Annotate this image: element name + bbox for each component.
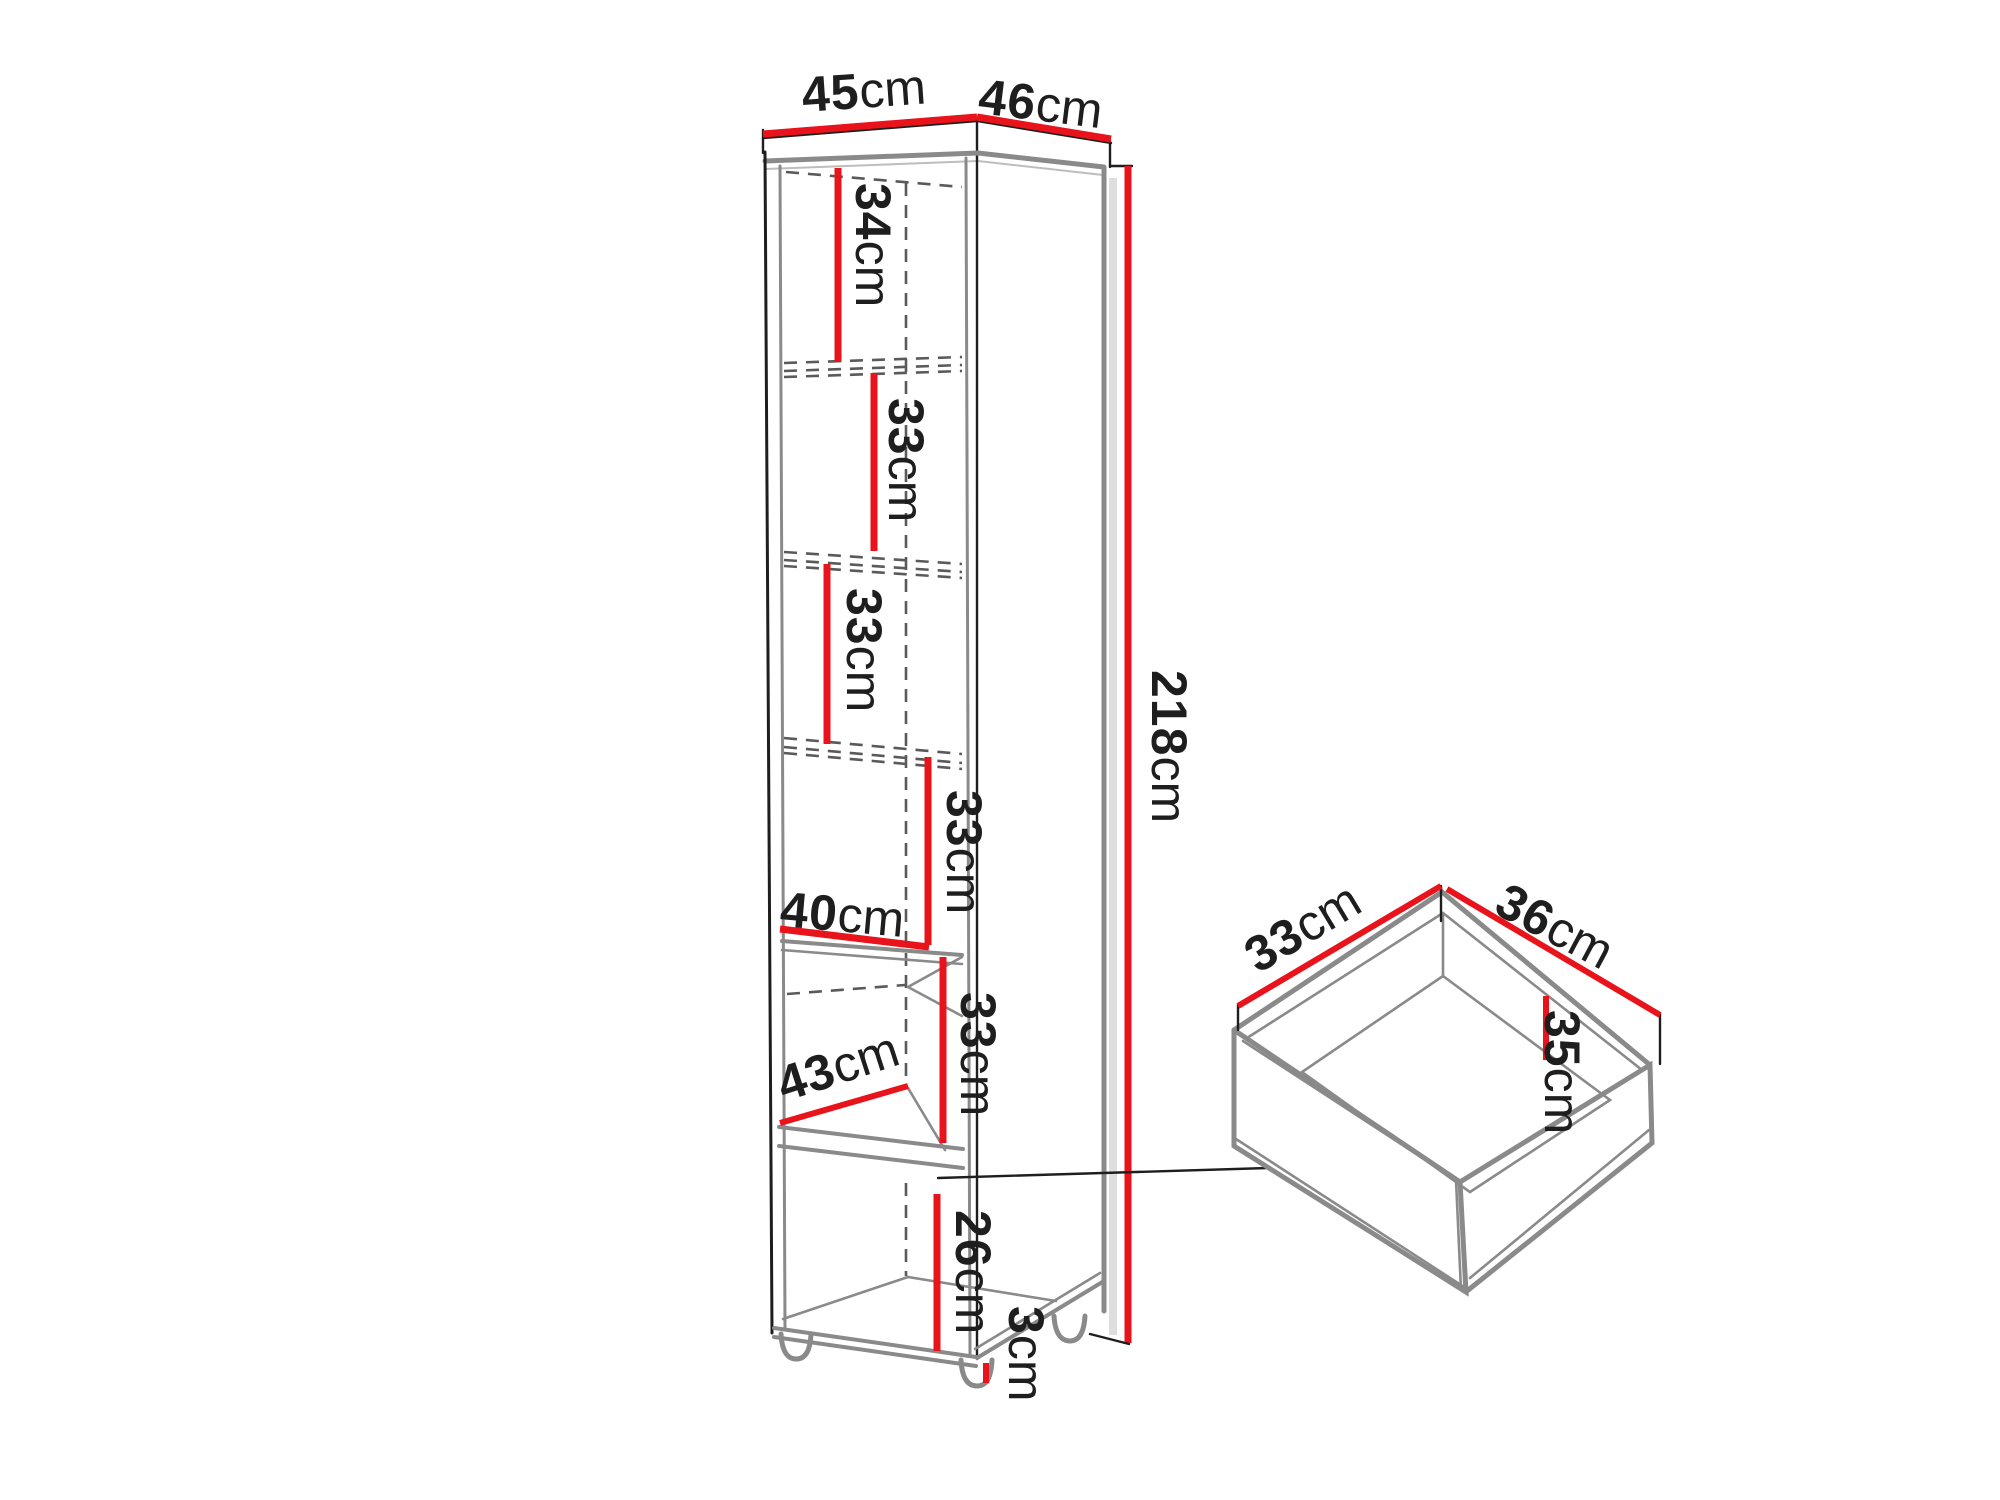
dim-label-top-width: 45cm xyxy=(800,58,928,123)
bottom-divider-front-edge xyxy=(779,1127,963,1149)
dim-label-section-2: 33cm xyxy=(878,398,934,522)
cabinet xyxy=(763,119,1132,1386)
dim-label-section-4: 33cm xyxy=(936,790,992,914)
cabinet-body-outline xyxy=(765,152,1104,1366)
dim-label-drawer-height: 35cm xyxy=(1534,1010,1590,1134)
dim-label-bottom-section: 26cm xyxy=(945,1210,1001,1334)
dim-label-top-depth: 46cm xyxy=(976,68,1106,139)
shelf-1-hidden-edge xyxy=(784,357,962,363)
dim-label-height: 218cm xyxy=(1141,670,1197,823)
shelf-3-hidden-edge xyxy=(784,738,962,754)
dim-label-section-1: 34cm xyxy=(845,183,901,307)
dim-label-section-3: 33cm xyxy=(836,588,892,712)
dim-label-foot-height: 3cm xyxy=(998,1306,1054,1401)
dim-line-top-width xyxy=(763,117,977,134)
dim-label-section-5: 33cm xyxy=(950,992,1006,1116)
cabinet-hidden-edges xyxy=(784,172,962,1276)
dim-label-shelf-depth: 43cm xyxy=(770,1021,906,1113)
furniture-dimension-diagram: 45cm 46cm 218cm 34cm 33cm 33cm 33cm 33cm… xyxy=(0,0,2000,1500)
cabinet-foot xyxy=(1054,1316,1085,1341)
dimension-labels: 45cm 46cm 218cm 34cm 33cm 33cm 33cm 33cm… xyxy=(770,58,1623,1401)
cabinet-shelves xyxy=(779,941,1056,1319)
bottom-floor-edge xyxy=(783,1277,908,1319)
dim-label-shelf-width: 40cm xyxy=(778,881,907,948)
